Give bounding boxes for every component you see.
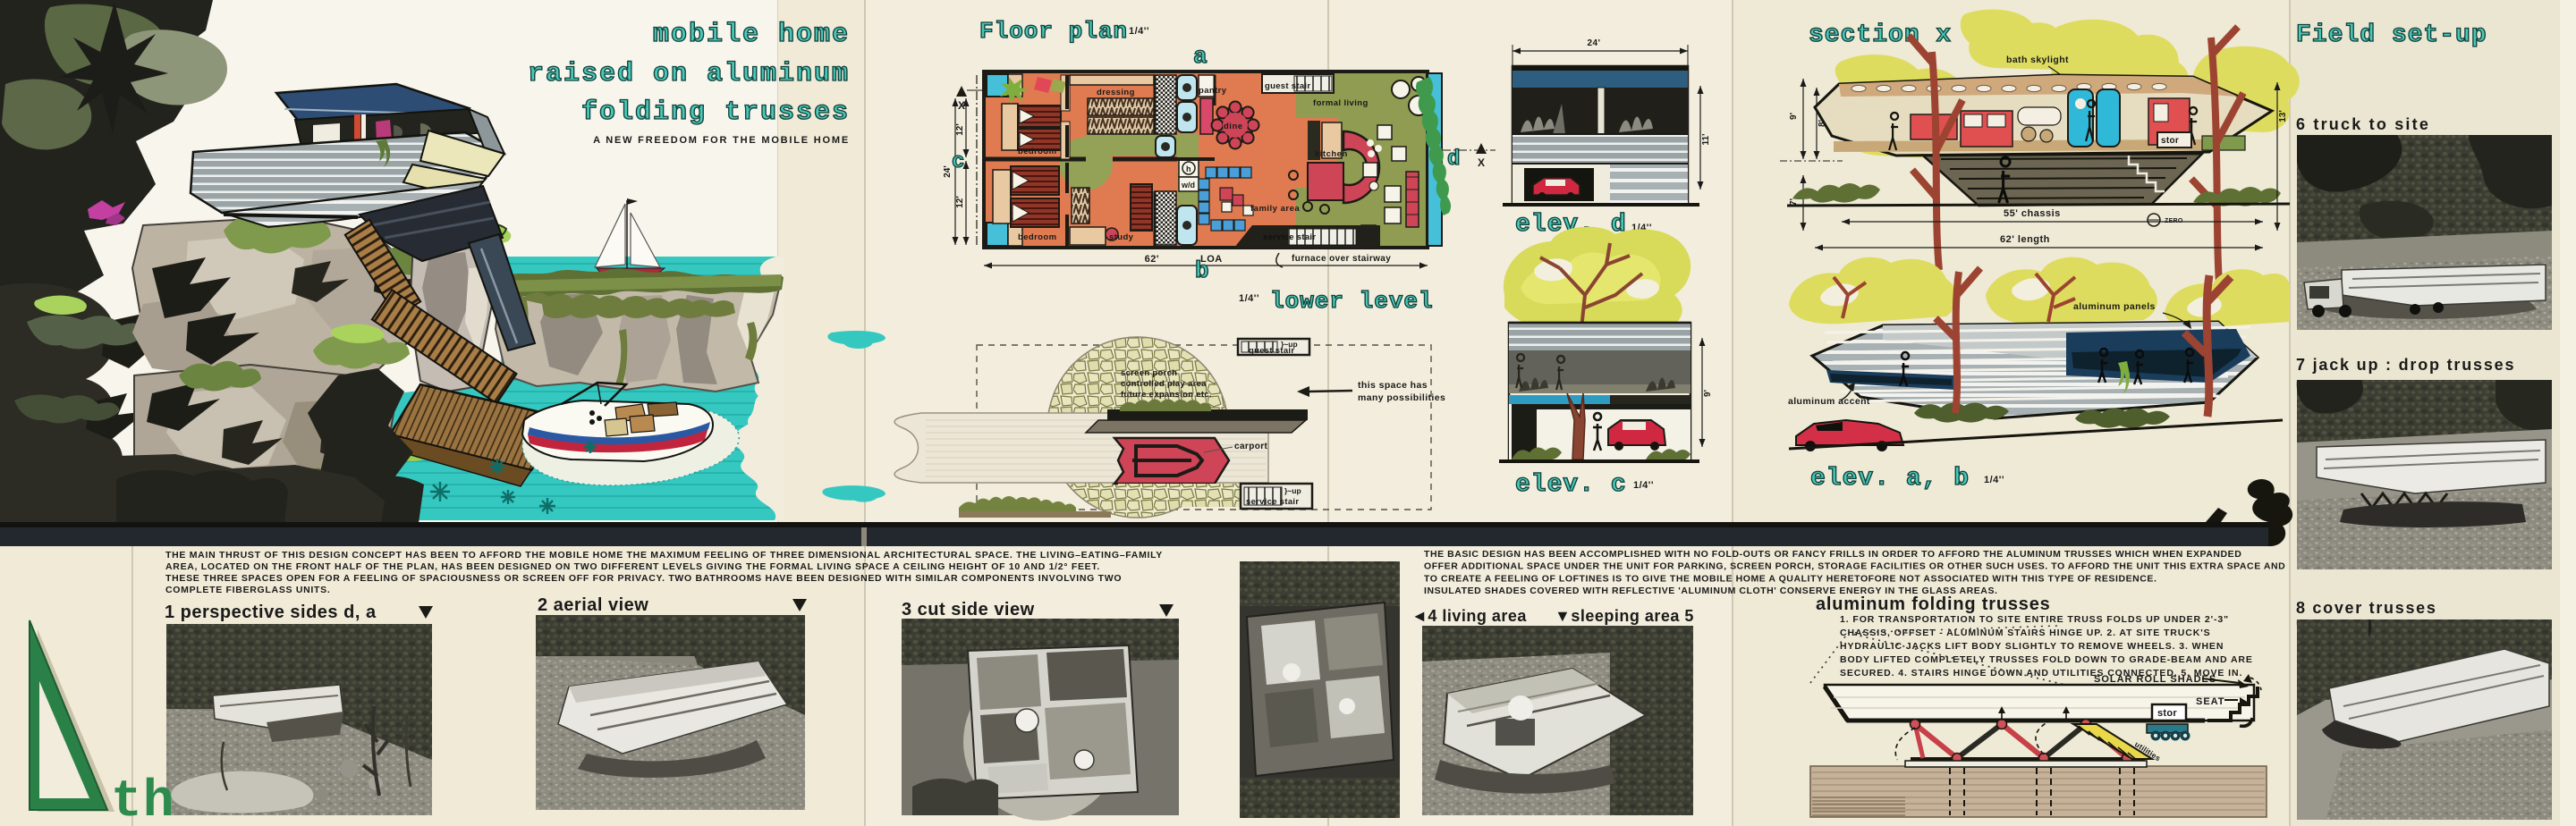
svg-text:1 perspective sides d, a: 1 perspective sides d, a	[165, 603, 377, 622]
svg-text:guest stair: guest stair	[1249, 346, 1294, 356]
svg-text:Field set-up: Field set-up	[2296, 21, 2487, 49]
svg-text:c: c	[952, 150, 967, 174]
svg-text:SEAT: SEAT	[2196, 696, 2225, 707]
svg-text:8 cover trusses: 8 cover trusses	[2296, 599, 2437, 617]
svg-text:guest stair: guest stair	[1265, 81, 1310, 91]
svg-text:X: X	[1478, 156, 1485, 169]
svg-text:▼sleeping area 5: ▼sleeping area 5	[1555, 607, 1694, 625]
svg-text:2 aerial view: 2 aerial view	[538, 595, 648, 615]
svg-text:lower level: lower level	[1270, 288, 1434, 315]
svg-text:62' length: 62' length	[2000, 234, 2050, 245]
svg-text:1/4'': 1/4''	[1239, 293, 1259, 304]
svg-text:carport: carport	[1234, 442, 1268, 451]
svg-text:bedroom: bedroom	[1018, 232, 1056, 242]
svg-text:1/4'': 1/4''	[1984, 475, 2004, 485]
svg-text:dine: dine	[1224, 122, 1243, 131]
svg-text:h: h	[1186, 164, 1191, 173]
svg-text:mobile home: mobile home	[653, 20, 850, 50]
svg-text:furnace over stairway: furnace over stairway	[1292, 254, 1391, 264]
svg-text:service stair: service stair	[1263, 232, 1316, 242]
svg-text:Floor plan: Floor plan	[979, 18, 1128, 45]
svg-text:7 jack up : drop trusses: 7 jack up : drop trusses	[2296, 356, 2515, 374]
svg-text:w/d: w/d	[1181, 181, 1195, 190]
svg-text:stor: stor	[2161, 136, 2179, 146]
svg-text:bedroom: bedroom	[1018, 147, 1056, 156]
svg-text:COMPLETE FIBERGLASS UNITS.: COMPLETE FIBERGLASS UNITS.	[165, 585, 330, 595]
svg-text:this space has: this space has	[1358, 380, 1428, 391]
svg-text:stor: stor	[2157, 708, 2177, 719]
svg-text:SOLAR ROLL SHADES: SOLAR ROLL SHADES	[2094, 674, 2216, 685]
svg-text:many possibilities: many possibilities	[1358, 392, 1445, 403]
svg-text:1/4'': 1/4''	[1129, 26, 1149, 37]
svg-text:screen porch: screen porch	[1121, 368, 1177, 378]
svg-text:TO CREATE A FEELING OF LO: TO CREATE A FEELING OF LOFTINES IS TO GI…	[1424, 573, 2157, 584]
svg-text:1. FOR TRANSPORTATION TO S: 1. FOR TRANSPORTATION TO SITE ENTIRE TRU…	[1840, 614, 2229, 625]
svg-text:study: study	[1109, 232, 1134, 242]
svg-text:◄4 living area: ◄4 living area	[1411, 607, 1527, 625]
svg-text:AREA, LOCATED ON THE FRONT: AREA, LOCATED ON THE FRONT HALF OF THE P…	[165, 561, 1100, 572]
svg-text:section x: section x	[1809, 21, 1952, 49]
svg-text:aluminum accent: aluminum accent	[1788, 396, 1870, 407]
svg-text:service stair: service stair	[1246, 497, 1299, 507]
svg-text:55' chassis: 55' chassis	[2004, 208, 2061, 219]
svg-text:elev. c: elev. c	[1515, 471, 1627, 499]
svg-text:THE BASIC DESIGN HAS BEEN: THE BASIC DESIGN HAS BEEN ACCOMPLISHED W…	[1424, 549, 2241, 560]
svg-text:3 cut side view: 3 cut side view	[902, 600, 1035, 619]
svg-text:folding trusses: folding trusses	[581, 97, 850, 128]
svg-text:BODY LIFTED COMPLETELY TRUS: BODY LIFTED COMPLETELY TRUSSES FOLD DOWN…	[1840, 654, 2253, 665]
svg-text:raised on aluminum: raised on aluminum	[528, 59, 850, 89]
svg-text:future expansion etc.: future expansion etc.	[1121, 390, 1212, 400]
svg-text:th: th	[111, 773, 175, 826]
svg-text:6 truck to site: 6 truck to site	[2296, 115, 2430, 133]
svg-text:HYDRAULIC JACKS LIFT BODY: HYDRAULIC JACKS LIFT BODY SLIGHTLY TO RE…	[1840, 641, 2224, 652]
svg-text:1/4'': 1/4''	[1633, 480, 1654, 491]
svg-text:family area: family area	[1250, 204, 1300, 214]
svg-text:9': 9'	[1703, 390, 1713, 397]
svg-text:kitchen: kitchen	[1315, 149, 1348, 159]
svg-text:11': 11'	[1701, 134, 1711, 146]
svg-text:THE MAIN THRUST OF THIS D: THE MAIN THRUST OF THIS DESIGN CONCEPT H…	[165, 550, 1163, 560]
svg-text:a: a	[1193, 43, 1210, 70]
svg-text:controlled play area: controlled play area	[1121, 379, 1207, 389]
svg-text:elev. a, b: elev. a, b	[1810, 465, 1970, 493]
svg-text:A NEW FREEDOM FOR THE MOBILE H: A NEW FREEDOM FOR THE MOBILE HOME	[593, 135, 850, 146]
svg-text:dressing: dressing	[1097, 88, 1135, 97]
svg-text:formal living: formal living	[1313, 98, 1368, 108]
svg-text:}~up: }~up	[1284, 486, 1301, 495]
svg-text:X: X	[958, 99, 965, 112]
svg-text:OFFER ADDITIONAL SPACE UNDE: OFFER ADDITIONAL SPACE UNDER THE UNIT FO…	[1424, 561, 2285, 572]
svg-text:9': 9'	[1789, 113, 1799, 120]
svg-text:b: b	[1195, 257, 1212, 284]
svg-text:12': 12'	[955, 196, 965, 208]
svg-text:aluminum panels: aluminum panels	[2073, 301, 2156, 312]
svg-text:62': 62'	[1145, 254, 1159, 265]
svg-text:CHASSIS, OFFSET - ALUMINUM: CHASSIS, OFFSET - ALUMINUM STAIRS HINGE …	[1840, 628, 2211, 638]
svg-text:24': 24'	[1587, 38, 1600, 48]
svg-text:13': 13'	[2278, 110, 2288, 122]
svg-text:12': 12'	[955, 123, 965, 136]
svg-text:THESE THREE SPACES OPEN FO: THESE THREE SPACES OPEN FOR A FEELING OF…	[165, 573, 1122, 584]
svg-text:pantry: pantry	[1199, 86, 1227, 96]
svg-text:bath skylight: bath skylight	[2006, 55, 2069, 65]
svg-text:aluminum folding trusses: aluminum folding trusses	[1816, 594, 2051, 614]
svg-text:d: d	[1447, 147, 1462, 172]
